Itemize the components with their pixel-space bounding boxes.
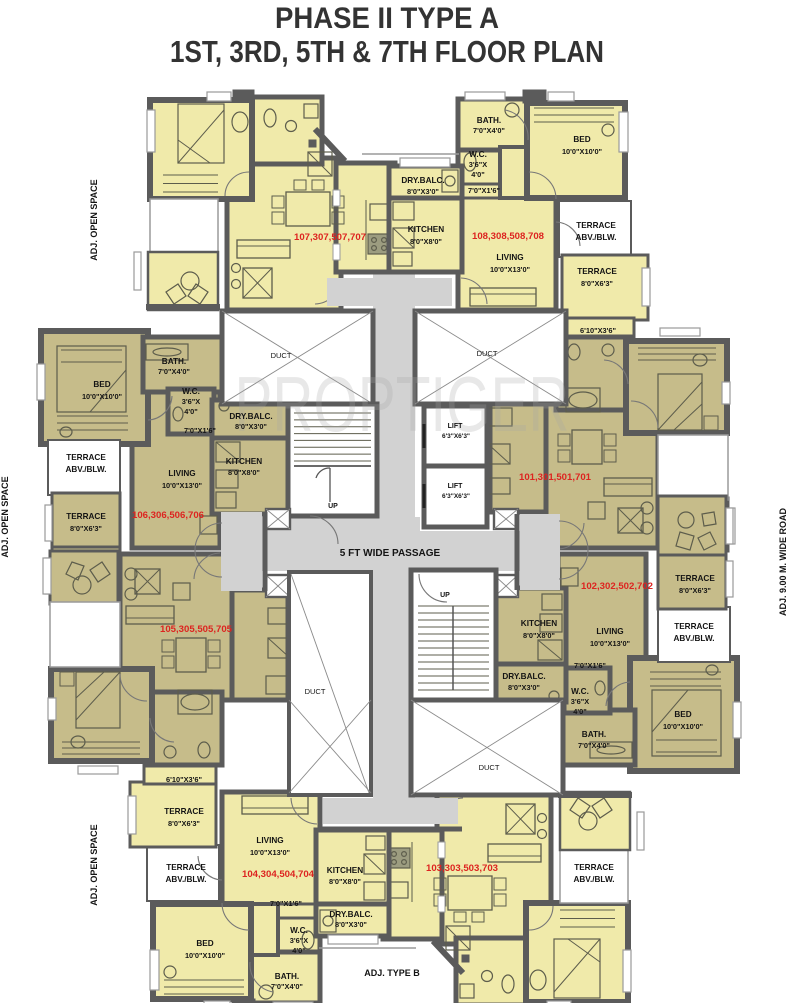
svg-text:ADJ. 9.00 M. WIDE ROAD: ADJ. 9.00 M. WIDE ROAD (778, 507, 788, 616)
svg-text:6'3"X6'3": 6'3"X6'3" (442, 433, 470, 440)
svg-text:8'0"X8'0": 8'0"X8'0" (523, 631, 555, 640)
svg-text:DRY.BALC.: DRY.BALC. (329, 910, 372, 919)
svg-text:TERRACE: TERRACE (164, 807, 204, 816)
svg-text:6'10"X3'6": 6'10"X3'6" (580, 326, 617, 335)
svg-text:4'0": 4'0" (292, 946, 306, 955)
svg-text:DUCT: DUCT (477, 349, 498, 358)
svg-text:TERRACE: TERRACE (66, 512, 106, 521)
svg-text:ABV./BLW.: ABV./BLW. (575, 233, 616, 242)
svg-text:7'0"X4'0": 7'0"X4'0" (473, 126, 505, 135)
svg-text:DUCT: DUCT (271, 351, 292, 360)
svg-text:LIFT: LIFT (448, 483, 463, 490)
svg-text:10'0"X13'0": 10'0"X13'0" (162, 481, 203, 490)
svg-text:107,307,507,707: 107,307,507,707 (294, 232, 366, 243)
svg-text:103,303,503,703: 103,303,503,703 (426, 863, 498, 874)
svg-text:8'0"X3'0": 8'0"X3'0" (508, 683, 540, 692)
svg-text:6'3"X6'3": 6'3"X6'3" (442, 493, 470, 500)
svg-text:KITCHEN: KITCHEN (521, 619, 557, 628)
svg-text:104,304,504,704: 104,304,504,704 (242, 869, 315, 880)
svg-text:KITCHEN: KITCHEN (408, 225, 444, 234)
svg-text:106,306,506,706: 106,306,506,706 (132, 510, 204, 521)
svg-text:4'0": 4'0" (573, 707, 587, 716)
svg-text:1ST, 3RD, 5TH & 7TH FLOOR PLAN: 1ST, 3RD, 5TH & 7TH FLOOR PLAN (170, 34, 604, 69)
svg-text:ADJ. OPEN SPACE: ADJ. OPEN SPACE (89, 824, 99, 905)
svg-text:W.C.: W.C. (290, 926, 308, 935)
svg-text:W.C.: W.C. (571, 687, 589, 696)
svg-text:3'6"X: 3'6"X (469, 160, 487, 169)
svg-text:8'0"X8'0": 8'0"X8'0" (410, 237, 442, 246)
svg-text:PROPTIGER: PROPTIGER (235, 360, 570, 448)
svg-text:TERRACE: TERRACE (166, 863, 206, 872)
svg-text:10'0"X10'0": 10'0"X10'0" (562, 147, 603, 156)
svg-text:102,302,502,702: 102,302,502,702 (581, 581, 653, 592)
svg-text:LIVING: LIVING (496, 253, 523, 262)
svg-text:BED: BED (196, 939, 213, 948)
svg-text:105,305,505,705: 105,305,505,705 (160, 624, 233, 635)
svg-text:LIVING: LIVING (168, 469, 195, 478)
svg-text:LIFT: LIFT (448, 423, 463, 430)
svg-text:10'0"X13'0": 10'0"X13'0" (490, 265, 531, 274)
svg-text:4'0": 4'0" (471, 170, 485, 179)
svg-text:BED: BED (674, 710, 691, 719)
svg-text:DRY.BALC.: DRY.BALC. (502, 672, 545, 681)
svg-text:3'6"X: 3'6"X (290, 936, 308, 945)
svg-text:7'0"X4'0": 7'0"X4'0" (158, 367, 190, 376)
svg-text:W.C.: W.C. (182, 387, 200, 396)
svg-text:TERRACE: TERRACE (675, 574, 715, 583)
svg-text:10'0"X13'0": 10'0"X13'0" (590, 639, 631, 648)
svg-text:LIVING: LIVING (596, 627, 623, 636)
svg-text:BATH.: BATH. (275, 972, 299, 981)
svg-text:ABV./BLW.: ABV./BLW. (65, 465, 106, 474)
svg-text:8'0"X6'3": 8'0"X6'3" (581, 279, 613, 288)
svg-text:10'0"X10'0": 10'0"X10'0" (185, 951, 226, 960)
svg-text:TERRACE: TERRACE (674, 622, 714, 631)
svg-text:7'0"X1'6": 7'0"X1'6" (270, 899, 302, 908)
svg-text:ADJ. TYPE B: ADJ. TYPE B (364, 968, 420, 978)
svg-text:ADJ. OPEN SPACE: ADJ. OPEN SPACE (89, 179, 99, 260)
svg-text:8'0"X8'0": 8'0"X8'0" (329, 877, 361, 886)
svg-text:3'6"X: 3'6"X (182, 397, 200, 406)
svg-text:DRY.BALC.: DRY.BALC. (401, 176, 444, 185)
svg-text:TERRACE: TERRACE (66, 453, 106, 462)
svg-text:BATH.: BATH. (162, 357, 186, 366)
svg-text:KITCHEN: KITCHEN (327, 866, 363, 875)
svg-text:8'0"X6'3": 8'0"X6'3" (168, 819, 200, 828)
svg-text:TERRACE: TERRACE (576, 221, 616, 230)
svg-text:UP: UP (328, 503, 338, 510)
svg-text:BATH.: BATH. (582, 730, 606, 739)
svg-text:ABV./BLW.: ABV./BLW. (673, 634, 714, 643)
svg-text:TERRACE: TERRACE (574, 863, 614, 872)
svg-text:101,301,501,701: 101,301,501,701 (519, 472, 592, 483)
svg-text:6'10"X3'6": 6'10"X3'6" (166, 775, 203, 784)
svg-text:5 FT WIDE PASSAGE: 5 FT WIDE PASSAGE (340, 548, 441, 559)
svg-text:BED: BED (573, 135, 590, 144)
svg-text:7'0"X4'0": 7'0"X4'0" (578, 741, 610, 750)
svg-text:KITCHEN: KITCHEN (226, 457, 262, 466)
svg-text:ADJ. OPEN SPACE: ADJ. OPEN SPACE (0, 476, 10, 557)
svg-text:LIVING: LIVING (256, 836, 283, 845)
svg-text:7'0"X4'0": 7'0"X4'0" (271, 982, 303, 991)
svg-text:DUCT: DUCT (305, 687, 326, 696)
svg-text:7'0"X1'6": 7'0"X1'6" (574, 661, 606, 670)
svg-text:ABV./BLW.: ABV./BLW. (165, 875, 206, 884)
svg-text:3'6"X: 3'6"X (571, 697, 589, 706)
svg-text:TERRACE: TERRACE (577, 267, 617, 276)
svg-text:DUCT: DUCT (479, 763, 500, 772)
svg-text:8'0"X6'3": 8'0"X6'3" (70, 524, 102, 533)
svg-text:10'0"X10'0": 10'0"X10'0" (663, 722, 704, 731)
svg-text:8'0"X8'0": 8'0"X8'0" (228, 468, 260, 477)
svg-text:108,308,508,708: 108,308,508,708 (472, 231, 545, 242)
svg-text:8'0"X3'0": 8'0"X3'0" (235, 422, 267, 431)
svg-text:4'0": 4'0" (184, 407, 198, 416)
svg-text:UP: UP (440, 592, 450, 599)
svg-text:10'0"X13'0": 10'0"X13'0" (250, 848, 291, 857)
svg-text:7'0"X1'6": 7'0"X1'6" (184, 426, 216, 435)
svg-text:PHASE II TYPE A: PHASE II TYPE A (275, 2, 499, 35)
svg-text:8'0"X3'0": 8'0"X3'0" (335, 920, 367, 929)
svg-text:ABV./BLW.: ABV./BLW. (573, 875, 614, 884)
svg-text:W.C.: W.C. (469, 150, 487, 159)
svg-text:8'0"X3'0": 8'0"X3'0" (407, 187, 439, 196)
svg-text:7'0"X1'6": 7'0"X1'6" (468, 186, 500, 195)
svg-text:10'0"X10'0": 10'0"X10'0" (82, 392, 123, 401)
svg-text:8'0"X6'3": 8'0"X6'3" (679, 586, 711, 595)
svg-text:DRY.BALC.: DRY.BALC. (229, 412, 272, 421)
svg-text:BED: BED (93, 380, 110, 389)
svg-text:BATH.: BATH. (477, 116, 501, 125)
